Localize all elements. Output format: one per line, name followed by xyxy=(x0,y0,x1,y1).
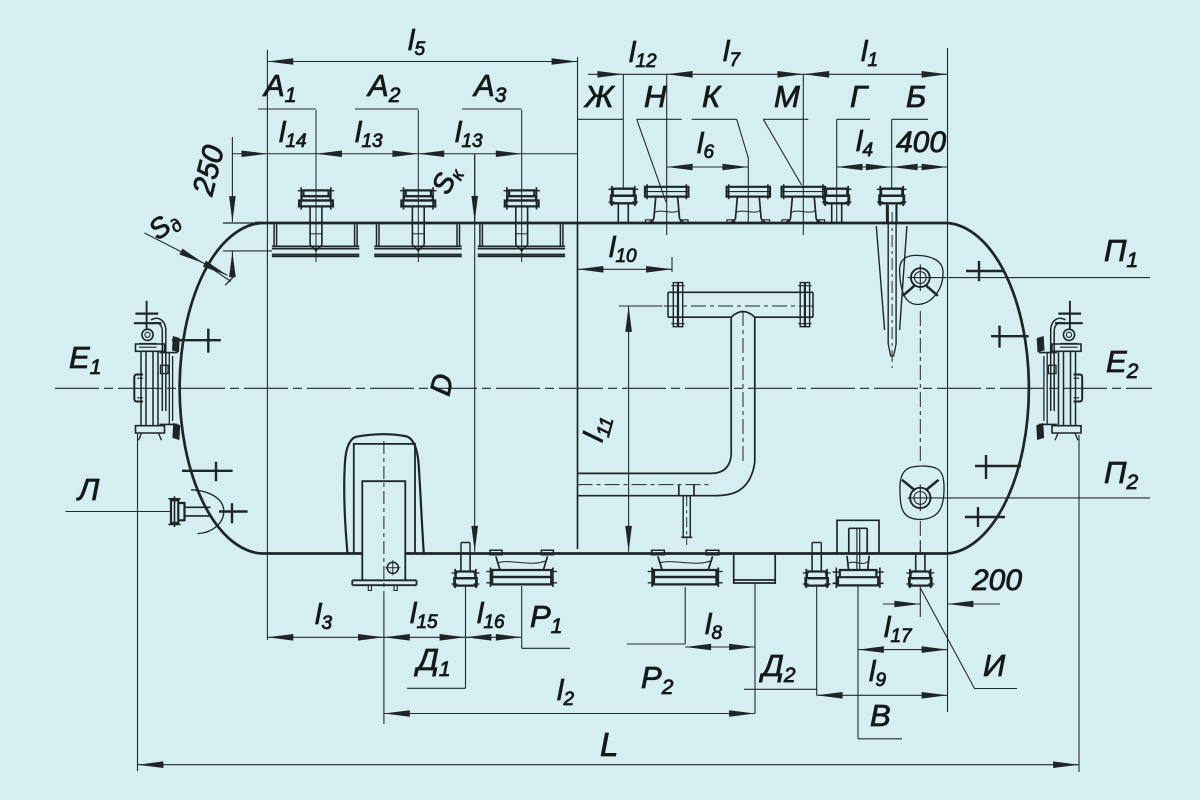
svg-text:Л: Л xyxy=(76,472,100,507)
svg-text:К: К xyxy=(702,79,722,114)
svg-text:200: 200 xyxy=(971,564,1022,597)
svg-text:Ж: Ж xyxy=(583,79,615,114)
svg-text:М: М xyxy=(774,79,800,114)
svg-text:И: И xyxy=(983,648,1006,683)
svg-text:В: В xyxy=(870,698,891,733)
svg-text:400: 400 xyxy=(896,126,946,159)
svg-text:Н: Н xyxy=(644,79,667,114)
svg-text:Г: Г xyxy=(850,79,869,114)
svg-text:L: L xyxy=(600,726,618,763)
svg-text:Б: Б xyxy=(906,79,926,114)
